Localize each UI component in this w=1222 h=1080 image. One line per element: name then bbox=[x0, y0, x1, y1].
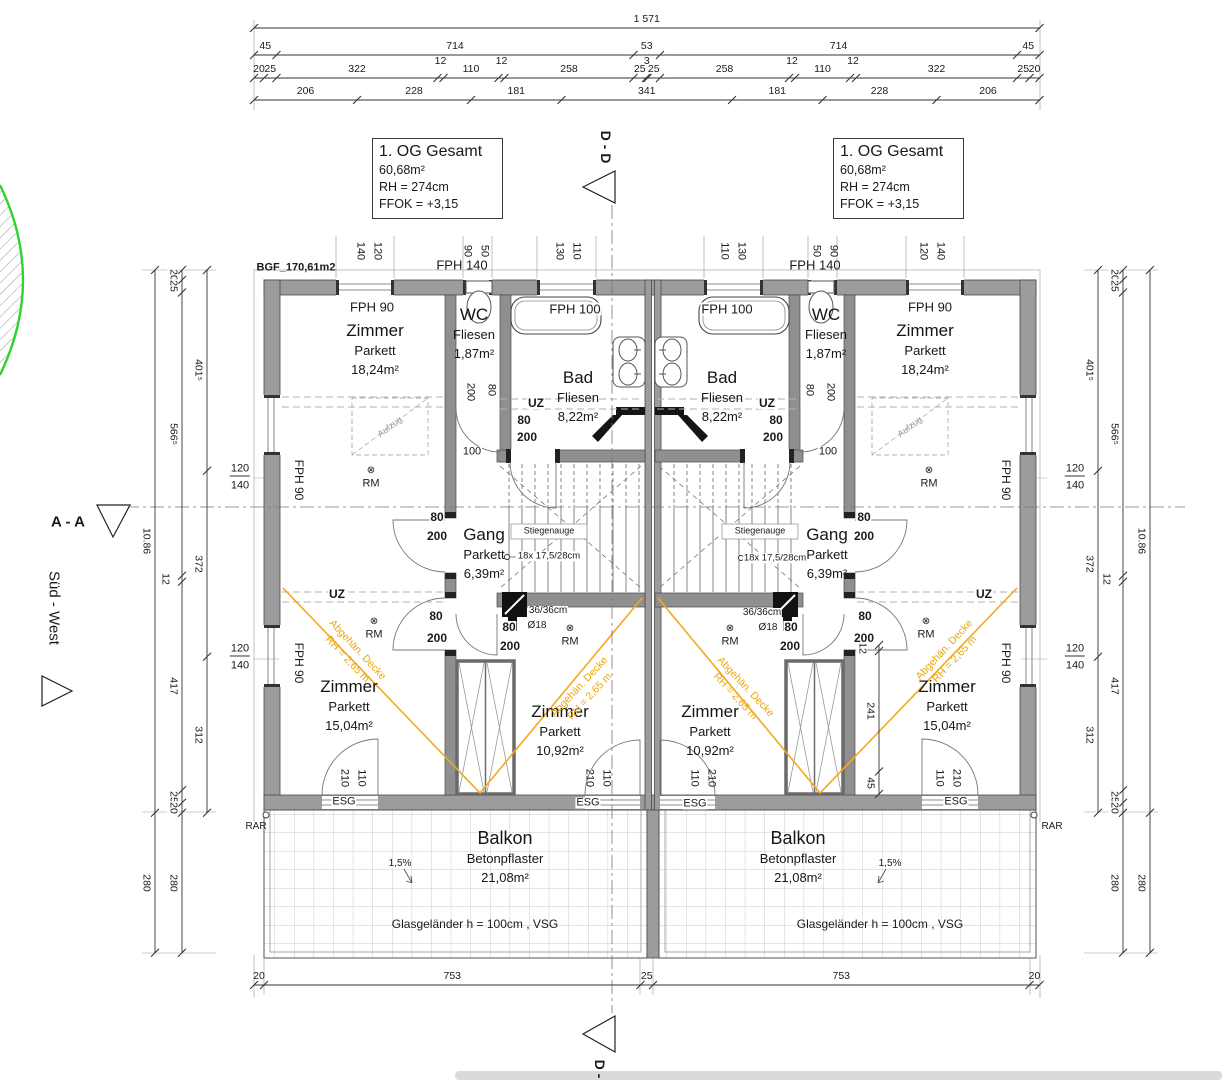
dim-label: 20 bbox=[1029, 971, 1041, 982]
dim-label: 12 bbox=[1101, 572, 1112, 586]
annotation-label: Glasgeländer h = 100cm , VSG bbox=[392, 918, 558, 930]
dim-label: 280 bbox=[1136, 873, 1147, 893]
dim-label: 341 bbox=[638, 86, 656, 97]
room-finish: Parkett bbox=[531, 722, 589, 741]
annotation-label: 80 bbox=[856, 511, 871, 523]
room-finish: Parkett bbox=[346, 341, 404, 360]
dim-label: 280 bbox=[168, 873, 179, 893]
room-finish: Parkett bbox=[806, 545, 848, 564]
annotation-label: ⊗ bbox=[566, 624, 574, 634]
annotation-label: RM bbox=[561, 637, 578, 648]
annotation-label: 80 bbox=[857, 610, 872, 622]
dim-label: 401⁵ bbox=[1084, 358, 1095, 382]
annotation-label: 210 bbox=[706, 769, 717, 787]
room-finish: Parkett bbox=[320, 697, 378, 716]
room-name: Zimmer bbox=[896, 320, 954, 341]
annotation-label: RAR bbox=[1041, 822, 1062, 832]
dim-label: 228 bbox=[405, 86, 423, 97]
dim-label: 566⁵ bbox=[1109, 422, 1120, 446]
title-block-left-area: 60,68m² bbox=[379, 162, 494, 179]
annotation-label: 200 bbox=[779, 640, 801, 652]
annotation-label: ESG bbox=[943, 797, 968, 808]
annotation-label: ESG bbox=[575, 798, 600, 809]
annotation-label: 1,5% bbox=[879, 859, 902, 869]
annotation-label: A - A bbox=[51, 515, 85, 530]
room-label: GangParkett6,39m² bbox=[806, 524, 848, 583]
room-label: ZimmerParkett18,24m² bbox=[346, 320, 404, 379]
annotation-label: 210 bbox=[584, 769, 595, 787]
annotation-label: 80 bbox=[783, 621, 798, 633]
annotation-label: RM bbox=[917, 630, 934, 641]
dim-label: 20 bbox=[168, 801, 179, 815]
dim-label: 1 571 bbox=[634, 14, 660, 25]
annotation-label: 130 bbox=[736, 242, 747, 260]
annotation-label: RM bbox=[362, 479, 379, 490]
floor-plan-sheet: 1. OG Gesamt 60,68m² RH = 274cm FFOK = +… bbox=[0, 0, 1222, 1080]
dim-label: 417 bbox=[1109, 676, 1120, 696]
annotation-label: 100 bbox=[462, 447, 482, 458]
dim-label: 53 bbox=[641, 41, 653, 52]
title-block-right: 1. OG Gesamt 60,68m² RH = 274cm FFOK = +… bbox=[833, 138, 964, 219]
annotation-label: RM bbox=[721, 637, 738, 648]
annotation-label: 140 bbox=[935, 242, 946, 260]
annotation-label: 120 bbox=[1065, 464, 1085, 477]
room-label: WCFliesen1,87m² bbox=[453, 304, 495, 363]
annotation-label: Süd - West bbox=[47, 571, 62, 645]
annotation-label: 140 bbox=[1065, 661, 1085, 672]
annotation-label: FPH 100 bbox=[700, 303, 753, 316]
room-name: Zimmer bbox=[681, 701, 739, 722]
annotation-label: 140 bbox=[1065, 481, 1085, 492]
dim-label: 401⁵ bbox=[193, 358, 204, 382]
dim-label: 258 bbox=[716, 64, 734, 75]
annotation-label: ⊗ bbox=[367, 466, 375, 476]
annotation-label: 110 bbox=[601, 769, 612, 787]
room-name: Zimmer bbox=[346, 320, 404, 341]
annotation-label: ⊗ bbox=[370, 617, 378, 627]
room-finish: Fliesen bbox=[557, 388, 599, 407]
annotation-label: 36/36cm bbox=[742, 608, 782, 618]
annotation-label: 200 bbox=[853, 632, 875, 644]
room-finish: Fliesen bbox=[805, 325, 847, 344]
dim-label: 372 bbox=[1084, 554, 1095, 574]
dim-label: 12 bbox=[435, 56, 447, 67]
annotation-label: 120 bbox=[372, 242, 383, 260]
annotation-label: 120 bbox=[230, 644, 250, 657]
annotation-label: Ø18 bbox=[527, 621, 548, 631]
annotation-label: RAR bbox=[245, 822, 266, 832]
annotation-label: 1,5% bbox=[389, 859, 412, 869]
annotation-label: 80 bbox=[768, 414, 783, 426]
title-block-left-rh: RH = 274cm bbox=[379, 179, 494, 196]
annotation-label: FPH 100 bbox=[548, 303, 601, 316]
dim-label: 20 bbox=[253, 64, 265, 75]
dim-label: 714 bbox=[830, 41, 848, 52]
annotation-label: 200 bbox=[465, 382, 476, 402]
dim-label: 25 bbox=[641, 971, 653, 982]
annotation-label: Ø18 bbox=[758, 623, 779, 633]
dim-label: 181 bbox=[507, 86, 525, 97]
room-finish: Betonpflaster bbox=[760, 849, 837, 868]
room-area: 18,24m² bbox=[896, 360, 954, 379]
annotation-label: ⊗ bbox=[726, 624, 734, 634]
annotation-label: UZ bbox=[527, 397, 545, 409]
room-area: 10,92m² bbox=[531, 741, 589, 760]
room-finish: Parkett bbox=[896, 341, 954, 360]
annotation-label: 210 bbox=[339, 769, 350, 787]
annotation-label: 110 bbox=[689, 769, 700, 787]
dim-label: 258 bbox=[560, 64, 578, 75]
room-area: 8,22m² bbox=[701, 407, 743, 426]
dim-label: 25 bbox=[648, 64, 660, 75]
room-finish: Parkett bbox=[463, 545, 505, 564]
title-block-right-ffok: FFOK = +3,15 bbox=[840, 196, 955, 213]
annotation-label: FPH 90 bbox=[293, 460, 305, 501]
room-name: Balkon bbox=[467, 828, 544, 849]
room-label: BalkonBetonpflaster21,08m² bbox=[760, 828, 837, 887]
annotation-label: Stiegenauge bbox=[735, 527, 786, 536]
room-area: 1,87m² bbox=[453, 344, 495, 363]
annotation-label: 80 bbox=[516, 414, 531, 426]
annotation-label: D - D bbox=[599, 131, 613, 164]
annotation-label: 80 bbox=[486, 383, 497, 397]
room-label: WCFliesen1,87m² bbox=[805, 304, 847, 363]
dim-label: 25 bbox=[1109, 279, 1120, 293]
room-area: 1,87m² bbox=[805, 344, 847, 363]
dim-label: 45 bbox=[865, 776, 876, 790]
dim-label: 25 bbox=[264, 64, 276, 75]
annotation-label: 80 bbox=[804, 383, 815, 397]
room-area: 15,04m² bbox=[320, 716, 378, 735]
room-area: 21,08m² bbox=[760, 868, 837, 887]
room-label: GangParkett6,39m² bbox=[463, 524, 505, 583]
annotation-label: 200 bbox=[825, 382, 836, 402]
annotation-label: ESG bbox=[331, 797, 356, 808]
room-area: 21,08m² bbox=[467, 868, 544, 887]
annotation-label: RM bbox=[920, 479, 937, 490]
room-finish: Fliesen bbox=[701, 388, 743, 407]
annotation-label: FPH 90 bbox=[908, 301, 952, 314]
title-block-right-rh: RH = 274cm bbox=[840, 179, 955, 196]
room-name: Gang bbox=[463, 524, 505, 545]
annotation-label: UZ bbox=[328, 588, 346, 600]
title-block-left-title: 1. OG Gesamt bbox=[379, 142, 494, 162]
dim-label: 45 bbox=[259, 41, 271, 52]
dim-label: 206 bbox=[979, 86, 997, 97]
room-area: 10,92m² bbox=[681, 741, 739, 760]
dim-label: 25 bbox=[1017, 64, 1029, 75]
room-name: Bad bbox=[701, 367, 743, 388]
dim-label: 753 bbox=[832, 971, 850, 982]
annotation-label: 200 bbox=[499, 640, 521, 652]
dim-label: 181 bbox=[768, 86, 786, 97]
annotation-label: FPH 90 bbox=[1000, 643, 1012, 684]
annotation-label: 120 bbox=[918, 242, 929, 260]
room-area: 6,39m² bbox=[806, 564, 848, 583]
dim-label: 45 bbox=[1022, 41, 1034, 52]
annotation-label: 90 bbox=[462, 245, 473, 257]
dim-label: 372 bbox=[193, 554, 204, 574]
annotation-label: 80 bbox=[501, 621, 516, 633]
annotation-label: 200 bbox=[516, 431, 538, 443]
dim-label: 322 bbox=[348, 64, 366, 75]
annotation-label: 210 bbox=[951, 769, 962, 787]
dim-label: 20 bbox=[253, 971, 265, 982]
annotation-label: 120 bbox=[230, 464, 250, 477]
annotation-label: 140 bbox=[230, 661, 250, 672]
annotation-label: 110 bbox=[934, 769, 945, 787]
annotation-label: FPH 90 bbox=[293, 643, 305, 684]
room-area: 8,22m² bbox=[557, 407, 599, 426]
annotation-label: 200 bbox=[762, 431, 784, 443]
dim-label: 312 bbox=[193, 725, 204, 745]
annotation-label: FPH 90 bbox=[1000, 460, 1012, 501]
annotation-label: 200 bbox=[426, 530, 448, 542]
dim-label: 417 bbox=[168, 676, 179, 696]
title-block-left-ffok: FFOK = +3,15 bbox=[379, 196, 494, 213]
dim-label: 280 bbox=[1109, 873, 1120, 893]
room-name: WC bbox=[805, 304, 847, 325]
annotation-label: 200 bbox=[853, 530, 875, 542]
dim-label: 322 bbox=[928, 64, 946, 75]
room-area: 18,24m² bbox=[346, 360, 404, 379]
dim-label: 312 bbox=[1084, 725, 1095, 745]
dim-label: 228 bbox=[871, 86, 889, 97]
annotation-label: 80 bbox=[428, 610, 443, 622]
annotation-label: UZ bbox=[975, 588, 993, 600]
annotation-label: 18x 17,5/28cm bbox=[743, 553, 807, 563]
room-label: ZimmerParkett10,92m² bbox=[681, 701, 739, 760]
annotation-label: 200 bbox=[426, 632, 448, 644]
annotation-label: 120 bbox=[1065, 644, 1085, 657]
annotation-label: 110 bbox=[571, 242, 582, 260]
annotation-label: 100 bbox=[818, 447, 838, 458]
annotation-label: 90 bbox=[828, 245, 839, 257]
annotation-label: BGF_170,61m2 bbox=[257, 263, 336, 274]
dim-label: 20 bbox=[1029, 64, 1041, 75]
dim-label: 10.86 bbox=[1136, 527, 1147, 555]
annotation-label: 110 bbox=[356, 769, 367, 787]
annotation-label: Glasgeländer h = 100cm , VSG bbox=[797, 918, 963, 930]
room-finish: Parkett bbox=[918, 697, 976, 716]
annotation-label: 110 bbox=[719, 242, 730, 260]
room-name: Gang bbox=[806, 524, 848, 545]
dim-label: 12 bbox=[496, 56, 508, 67]
room-label: BadFliesen8,22m² bbox=[701, 367, 743, 426]
title-block-right-title: 1. OG Gesamt bbox=[840, 142, 955, 162]
dim-label: 12 bbox=[847, 56, 859, 67]
annotation-label: 50 bbox=[811, 245, 822, 257]
dim-label: 12 bbox=[786, 56, 798, 67]
title-block-right-area: 60,68m² bbox=[840, 162, 955, 179]
dim-label: 241 bbox=[865, 701, 876, 721]
annotation-label: D - D bbox=[593, 1060, 607, 1080]
room-label: ZimmerParkett18,24m² bbox=[896, 320, 954, 379]
annotation-label: ⊗ bbox=[925, 466, 933, 476]
annotation-label: FPH 140 bbox=[436, 259, 487, 272]
room-finish: Fliesen bbox=[453, 325, 495, 344]
annotation-label: 80 bbox=[429, 511, 444, 523]
dim-label: 110 bbox=[814, 64, 831, 75]
annotation-label: Stiegenauge bbox=[524, 527, 575, 536]
annotation-label: FPH 140 bbox=[789, 259, 840, 272]
dim-label: 280 bbox=[141, 873, 152, 893]
annotation-label: FPH 90 bbox=[350, 301, 394, 314]
annotation-label: ⊗ bbox=[922, 617, 930, 627]
title-block-left: 1. OG Gesamt 60,68m² RH = 274cm FFOK = +… bbox=[372, 138, 503, 219]
annotation-label: UZ bbox=[758, 397, 776, 409]
annotation-label: RM bbox=[365, 630, 382, 641]
dim-label: 206 bbox=[297, 86, 315, 97]
room-finish: Parkett bbox=[681, 722, 739, 741]
room-label: BalkonBetonpflaster21,08m² bbox=[467, 828, 544, 887]
room-area: 6,39m² bbox=[463, 564, 505, 583]
room-area: 15,04m² bbox=[918, 716, 976, 735]
room-name: Bad bbox=[557, 367, 599, 388]
room-finish: Betonpflaster bbox=[467, 849, 544, 868]
annotation-label: 18x 17,5/28cm bbox=[517, 551, 581, 561]
annotation-label: 36/36cm bbox=[528, 606, 568, 616]
dim-label: 12 bbox=[160, 572, 171, 586]
annotation-label: ESG bbox=[682, 799, 707, 810]
annotation-label: 140 bbox=[355, 242, 366, 260]
dim-label: 10.86 bbox=[141, 527, 152, 555]
bottom-window-bar bbox=[455, 1071, 1222, 1080]
dim-label: 714 bbox=[446, 41, 464, 52]
room-label: BadFliesen8,22m² bbox=[557, 367, 599, 426]
annotation-label: 50 bbox=[479, 245, 490, 257]
annotation-label: 130 bbox=[554, 242, 565, 260]
dim-label: 566⁵ bbox=[168, 422, 179, 446]
dim-label: 25 bbox=[168, 279, 179, 293]
dim-label: 753 bbox=[443, 971, 461, 982]
dim-label: 20 bbox=[1109, 801, 1120, 815]
dim-label: 110 bbox=[463, 64, 480, 75]
annotation-label: 140 bbox=[230, 481, 250, 492]
room-name: WC bbox=[453, 304, 495, 325]
room-name: Balkon bbox=[760, 828, 837, 849]
